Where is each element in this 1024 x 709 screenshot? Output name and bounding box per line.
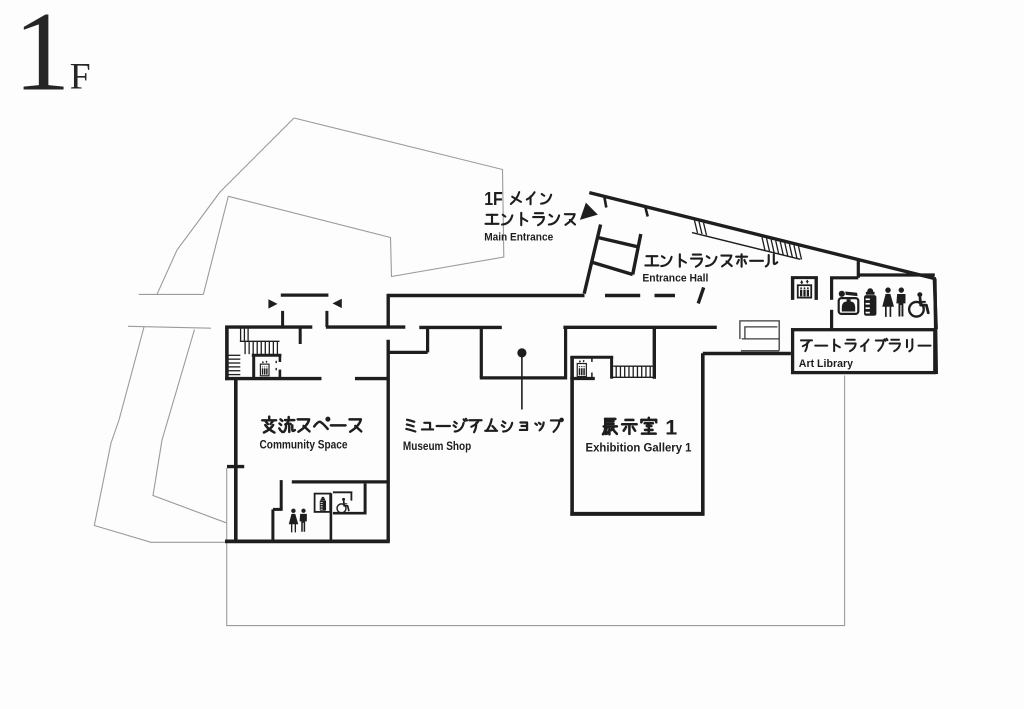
svg-text:Main Entrance: Main Entrance [484,231,553,243]
svg-text:1F: 1F [484,188,503,209]
svg-text:Art Library: Art Library [799,358,854,370]
svg-text:1: 1 [14,0,71,114]
svg-text:Community Space: Community Space [260,438,348,452]
svg-text:1: 1 [665,415,677,439]
svg-text:F: F [70,56,91,97]
svg-text:Exhibition Gallery 1: Exhibition Gallery 1 [586,443,693,455]
svg-text:Entrance Hall: Entrance Hall [642,273,708,285]
svg-text:Museum Shop: Museum Shop [403,440,471,453]
